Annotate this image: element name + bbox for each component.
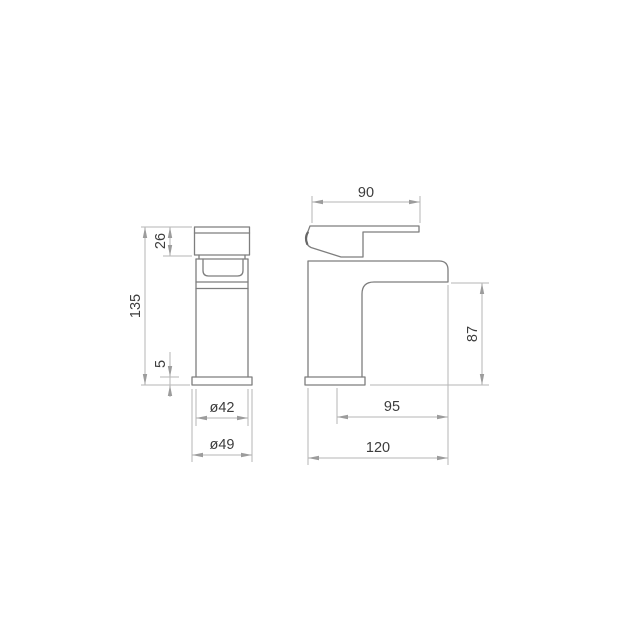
front-spout-window: [203, 259, 243, 276]
dim-body-diameter: ø42: [196, 389, 248, 426]
dim-label-base-plate-height: 5: [153, 360, 169, 368]
dim-handle-height: 26: [153, 227, 192, 256]
arrowhead-left: [192, 453, 203, 457]
side-handle-front-lip: [306, 233, 308, 245]
dim-label-spout-projection: 95: [384, 399, 400, 415]
dim-base-plate-height: 5: [153, 352, 179, 397]
dim-total-depth: 120: [308, 388, 448, 465]
dim-handle-length: 90: [312, 185, 420, 223]
arrowhead-right: [241, 453, 252, 457]
arrowhead-right: [409, 200, 420, 204]
side-view: [305, 226, 448, 385]
arrowhead-up: [168, 385, 172, 396]
side-body-spout-outline: [308, 261, 448, 377]
dim-label-spout-clearance-height: 87: [465, 326, 481, 342]
arrowhead-right: [437, 415, 448, 419]
arrowhead-up: [143, 227, 147, 238]
dim-label-total-height: 135: [128, 294, 144, 318]
dim-total-height: 135: [128, 227, 147, 385]
dim-label-handle-height: 26: [153, 233, 169, 249]
technical-drawing-canvas: 26 135 5 ø42 ø49 90: [0, 0, 629, 629]
front-base-flange: [192, 377, 252, 385]
dim-label-base-diameter: ø49: [210, 437, 235, 453]
arrowhead-left: [196, 416, 207, 420]
side-handle-lever: [306, 226, 419, 257]
arrowhead-down: [143, 374, 147, 385]
arrowhead-up: [480, 283, 484, 294]
front-handle-outline: [195, 227, 250, 255]
dim-label-body-diameter: ø42: [210, 400, 235, 416]
arrowhead-right: [237, 416, 248, 420]
arrowhead-left: [337, 415, 348, 419]
tap-dimension-drawing: 26 135 5 ø42 ø49 90: [0, 0, 629, 629]
dim-spout-projection: 95: [337, 285, 448, 465]
dim-spout-clearance-height: 87: [370, 283, 489, 385]
front-view: [192, 227, 252, 385]
arrowhead-down: [480, 374, 484, 385]
side-base-flange: [305, 377, 365, 385]
dim-label-total-depth: 120: [366, 440, 390, 456]
arrowhead-right: [437, 456, 448, 460]
arrowhead-left: [312, 200, 323, 204]
arrowhead-left: [308, 456, 319, 460]
dim-label-handle-length: 90: [358, 185, 374, 201]
